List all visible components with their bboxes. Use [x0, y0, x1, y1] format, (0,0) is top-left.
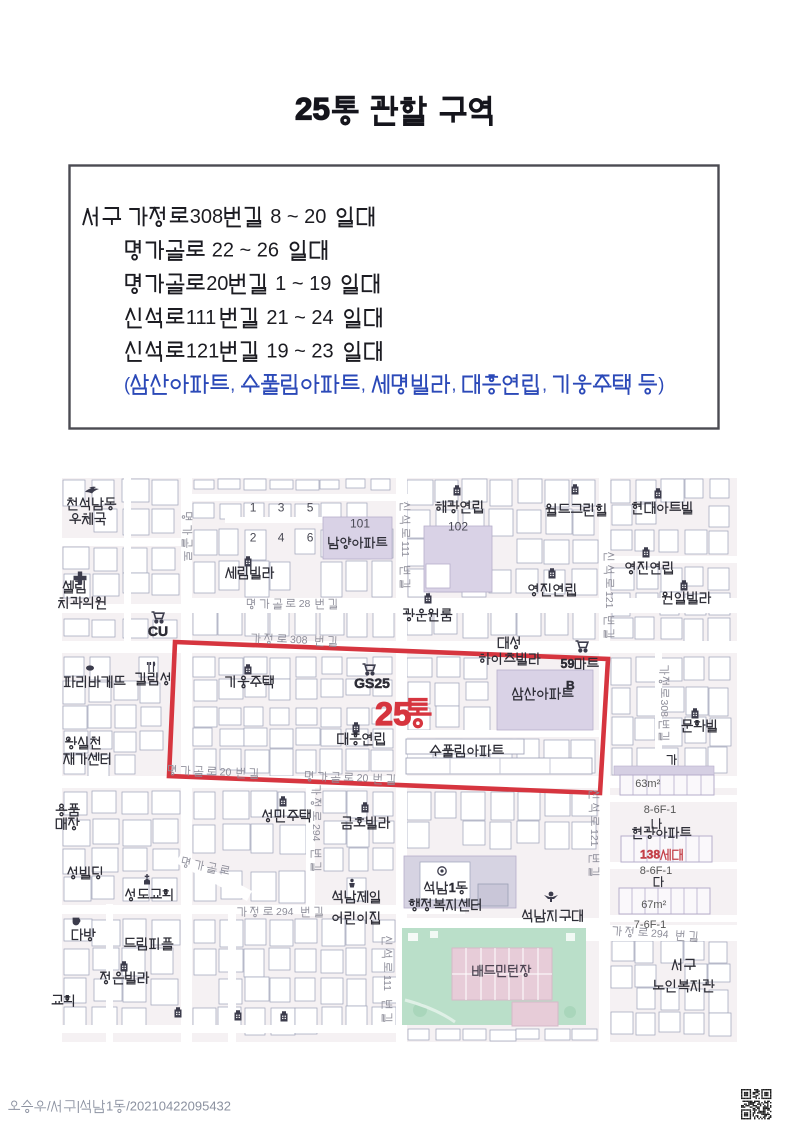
svg-text:1 ~ 19: 1 ~ 19 [270, 273, 337, 295]
svg-text:1: 1 [449, 881, 456, 895]
svg-text:294: 294 [651, 928, 669, 941]
svg-text:59: 59 [561, 657, 575, 671]
svg-text:111: 111 [381, 975, 393, 991]
svg-text:308: 308 [290, 634, 308, 647]
svg-text:111: 111 [399, 541, 411, 557]
svg-text:|: | [77, 1098, 80, 1113]
svg-text:19 ~ 23: 19 ~ 23 [261, 341, 339, 363]
svg-text:63m²: 63m² [635, 778, 660, 790]
svg-text:8-6F-1: 8-6F-1 [640, 865, 672, 877]
svg-text:,: , [361, 374, 371, 395]
svg-text:B: B [566, 679, 575, 693]
svg-text:121: 121 [603, 591, 615, 609]
svg-text:6: 6 [307, 531, 314, 545]
svg-text:1: 1 [106, 1098, 113, 1113]
svg-text:,: , [451, 374, 461, 395]
svg-text:294: 294 [276, 906, 294, 918]
svg-text:3: 3 [278, 501, 285, 515]
svg-text:5: 5 [307, 501, 314, 515]
svg-text:28: 28 [299, 598, 311, 610]
svg-text:20: 20 [206, 273, 228, 295]
svg-text:102: 102 [448, 520, 468, 534]
svg-text:101: 101 [350, 517, 370, 531]
svg-text:138: 138 [640, 848, 660, 862]
svg-text:121: 121 [588, 829, 600, 847]
svg-text:1: 1 [250, 501, 257, 515]
svg-text:22 ~ 26: 22 ~ 26 [206, 240, 284, 262]
svg-text:25: 25 [295, 91, 330, 126]
svg-text:8-6F-1: 8-6F-1 [644, 804, 676, 816]
svg-text:308: 308 [190, 206, 223, 228]
svg-text:4: 4 [278, 531, 285, 545]
svg-text:/: / [47, 1098, 51, 1113]
svg-text:2: 2 [250, 531, 257, 545]
svg-text:8 ~ 20: 8 ~ 20 [265, 206, 332, 228]
svg-text:21 ~ 24: 21 ~ 24 [261, 307, 339, 329]
svg-text:CU: CU [148, 623, 168, 639]
svg-text:121: 121 [186, 341, 219, 363]
svg-text:): ) [658, 374, 664, 395]
svg-text:111: 111 [186, 307, 216, 329]
svg-text:(: ( [124, 374, 131, 395]
svg-text:20: 20 [356, 772, 368, 784]
svg-text:20: 20 [219, 766, 231, 778]
svg-text:,: , [230, 374, 240, 395]
svg-text:308: 308 [658, 700, 670, 718]
svg-text:294: 294 [310, 824, 322, 842]
svg-text:67m²: 67m² [641, 899, 666, 911]
svg-text:/20210422095432: /20210422095432 [126, 1098, 231, 1113]
svg-text:GS25: GS25 [354, 675, 390, 691]
svg-text:,: , [542, 374, 552, 395]
